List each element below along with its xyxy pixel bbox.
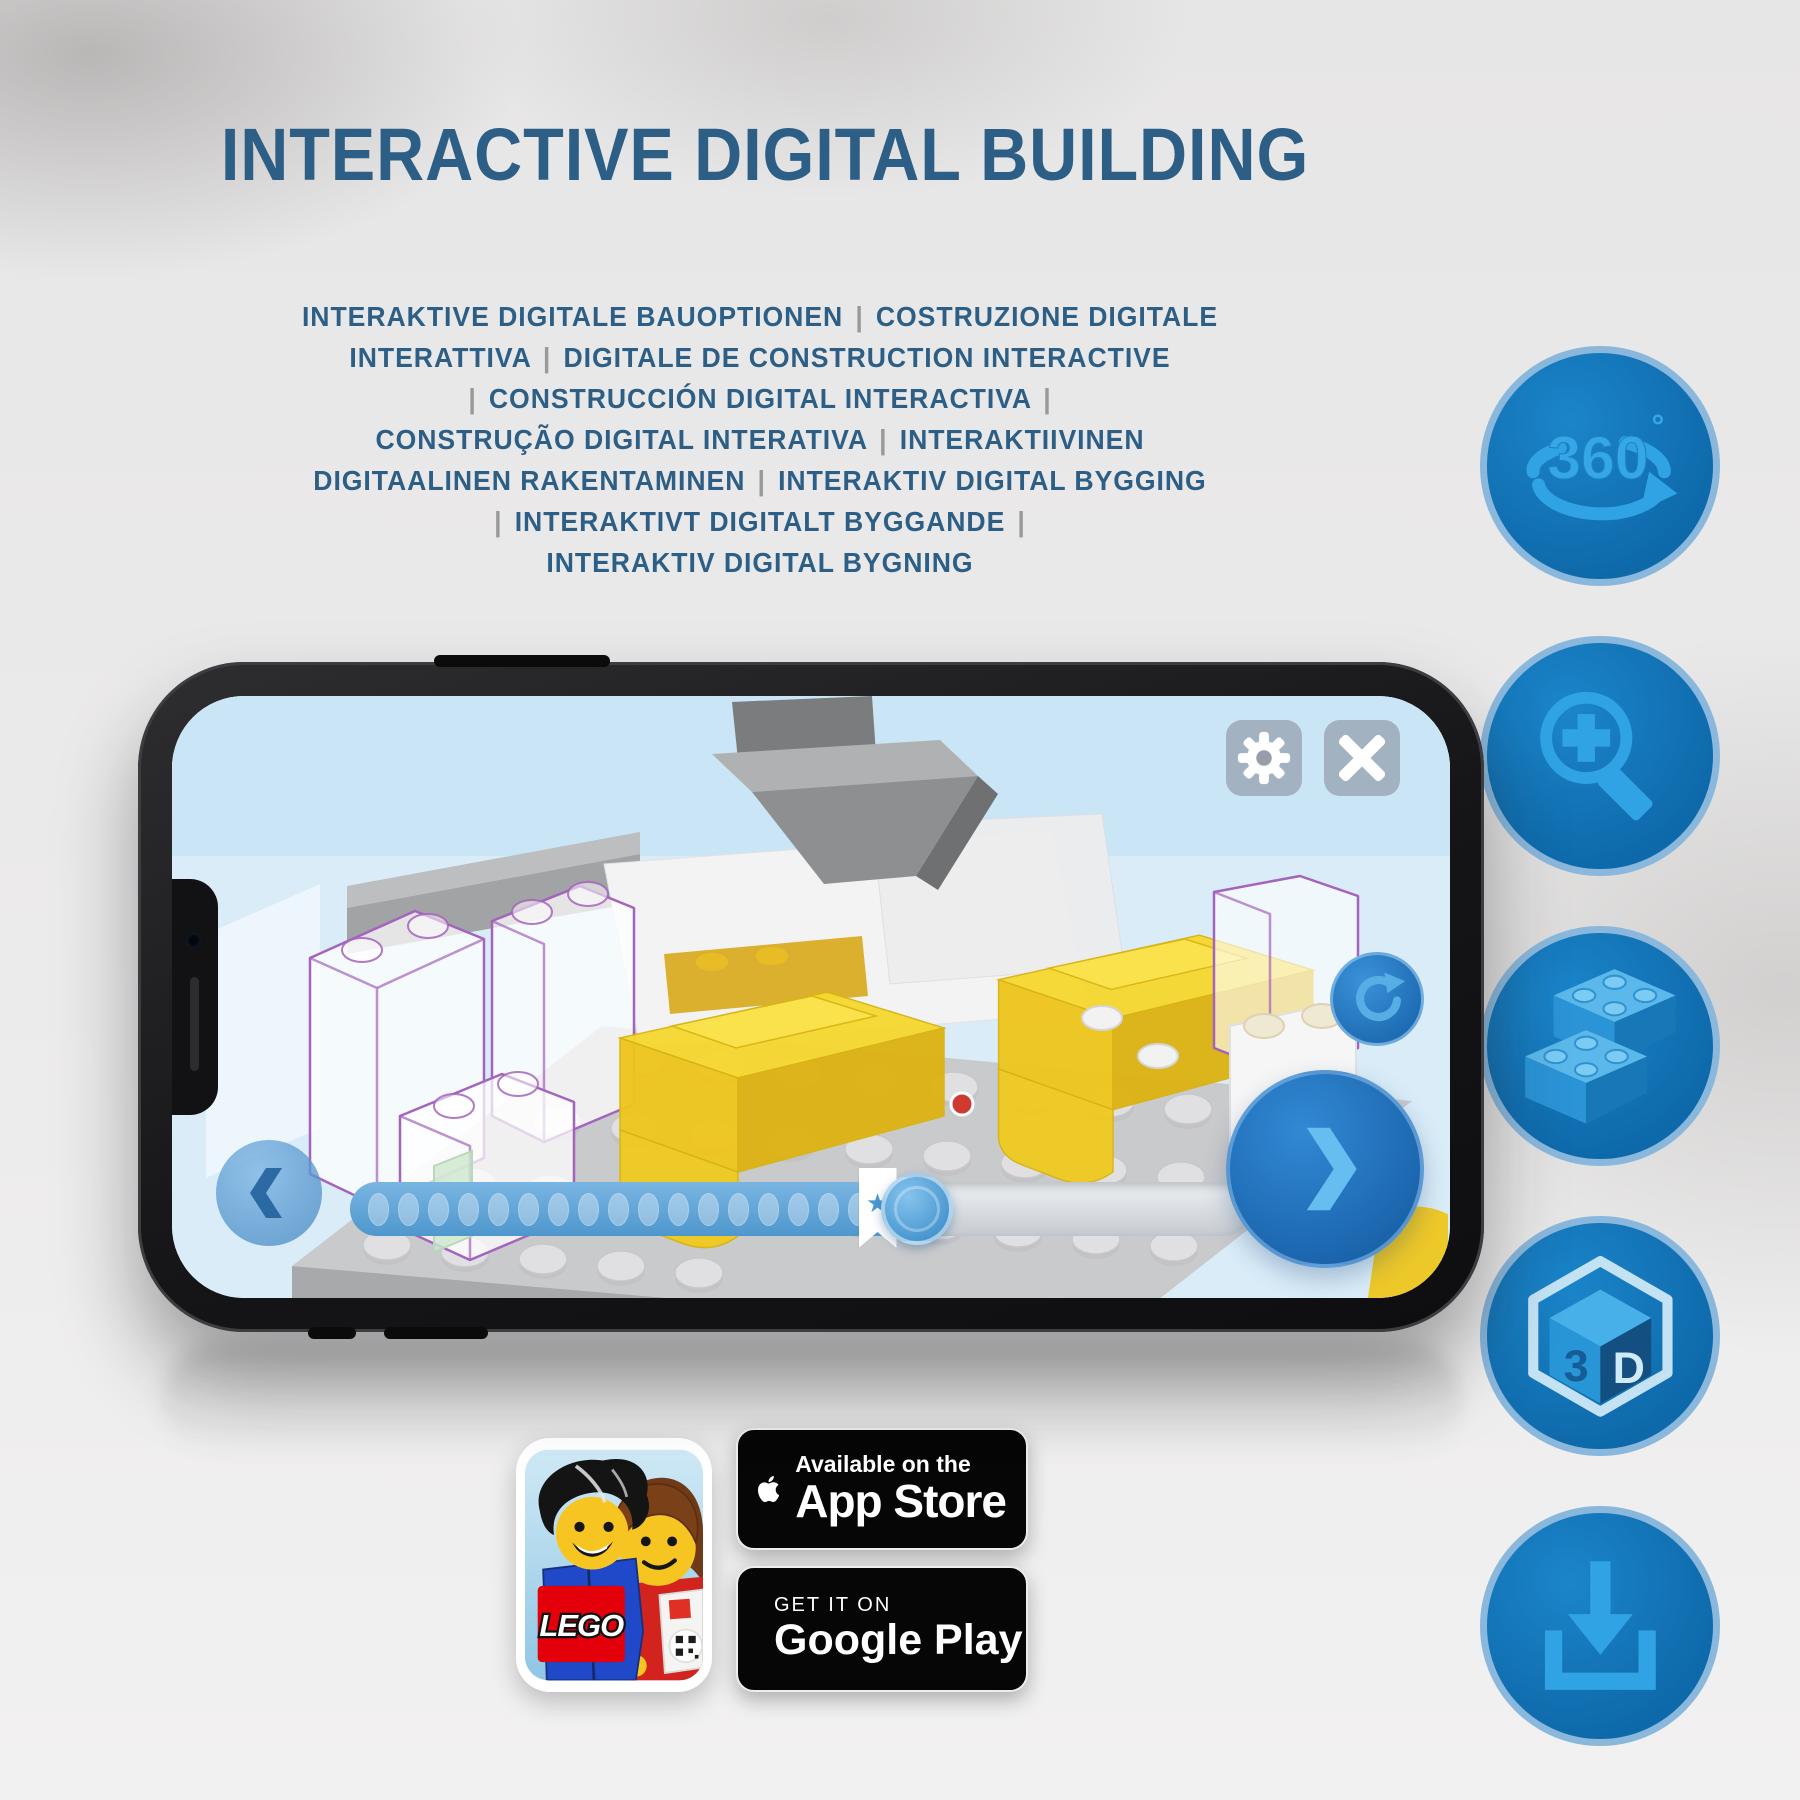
subtitle-line: DIGITAALINEN RAKENTAMINEN | INTERAKTIV D… (124, 460, 1397, 501)
previous-step-button[interactable] (216, 1140, 322, 1246)
lego-bricks-icon (1519, 965, 1682, 1128)
svg-text:°: ° (1651, 408, 1664, 444)
progress-dot (488, 1193, 509, 1226)
google-play-label: Google Play (774, 1617, 1023, 1663)
boy-head (556, 1497, 629, 1570)
progress-dot (368, 1193, 389, 1226)
phone-notch (172, 879, 218, 1115)
progress-dot (608, 1193, 629, 1226)
subtitle-line: | INTERAKTIVT DIGITALT BYGGANDE | (124, 501, 1397, 542)
zoom-in-icon (1519, 675, 1682, 838)
progress-dot (578, 1193, 599, 1226)
lego-logo-text: LEGO (539, 1608, 624, 1643)
next-step-button[interactable] (1226, 1070, 1424, 1268)
progress-dot (518, 1193, 539, 1226)
apple-logo-icon (758, 1457, 779, 1521)
feature-download (1480, 1506, 1720, 1746)
progress-dot (668, 1193, 689, 1226)
feature-bricks (1480, 926, 1720, 1166)
chevron-right-icon (1230, 1070, 1420, 1268)
progress-dot (548, 1193, 569, 1226)
svg-text:360: 360 (1547, 423, 1648, 491)
progress-dot (818, 1193, 839, 1226)
feature-360-rotation: 360 ° (1480, 346, 1720, 586)
progress-fill (350, 1182, 917, 1236)
camera-icon (186, 933, 201, 948)
phone-power-button (434, 655, 610, 667)
lego-app-icon[interactable]: LEGO (516, 1438, 712, 1692)
settings-button[interactable] (1226, 720, 1302, 796)
rotate-reset-button[interactable] (1330, 952, 1424, 1046)
progress-dot (698, 1193, 719, 1226)
app-store-badge[interactable]: Available on the App Store (736, 1428, 1028, 1550)
feature-zoom (1480, 636, 1720, 876)
subtitle-line: CONSTRUÇÃO DIGITAL INTERATIVA | INTERAKT… (124, 419, 1397, 460)
gear-icon (1233, 727, 1295, 789)
subtitle-line: INTERAKTIVE DIGITALE BAUOPTIONEN | COSTR… (124, 296, 1397, 337)
google-play-badge[interactable]: GET IT ON Google Play (736, 1566, 1028, 1692)
download-icon (1519, 1545, 1682, 1708)
progress-dot (428, 1193, 449, 1226)
app-store-label: App Store (795, 1477, 1006, 1527)
close-button[interactable] (1324, 720, 1400, 796)
360-rotation-icon: 360 ° (1519, 385, 1682, 548)
chevron-left-icon (216, 1140, 322, 1246)
app-store-tagline: Available on the (795, 1452, 1006, 1477)
progress-dot (758, 1193, 779, 1226)
subtitle-line: | CONSTRUCCIÓN DIGITAL INTERACTIVA | (124, 378, 1397, 419)
google-play-tagline: GET IT ON (774, 1595, 1023, 1617)
page-title: INTERACTIVE DIGITAL BUILDING (77, 112, 1454, 197)
progress-dot (788, 1193, 809, 1226)
phone-volume-button (308, 1327, 356, 1339)
svg-text:D: D (1612, 1343, 1644, 1393)
speaker-icon (190, 977, 199, 1071)
progress-slider-handle[interactable] (881, 1173, 953, 1245)
phone-mockup: ★ (138, 662, 1484, 1332)
3d-cube-icon: 3 D (1519, 1255, 1682, 1418)
progress-dot (728, 1193, 749, 1226)
feature-3d-view: 3 D (1480, 1216, 1720, 1456)
subtitle-line: INTERAKTIV DIGITAL BYGNING (124, 542, 1397, 583)
poster: INTERACTIVE DIGITAL BUILDING INTERAKTIVE… (0, 0, 1800, 1800)
lego-app-artwork: LEGO (525, 1447, 703, 1683)
progress-dot (458, 1193, 479, 1226)
phone-screen: ★ (172, 696, 1450, 1298)
progress-dot (398, 1193, 419, 1226)
subtitle-multilingual: INTERAKTIVE DIGITALE BAUOPTIONEN | COSTR… (124, 296, 1397, 583)
phone-volume-button (384, 1327, 488, 1339)
subtitle-line: INTERATTIVA | DIGITALE DE CONSTRUCTION I… (124, 337, 1397, 378)
progress-dot (638, 1193, 659, 1226)
svg-text:3: 3 (1563, 1341, 1588, 1391)
build-progress-bar[interactable]: ★ (350, 1182, 1250, 1236)
rotate-icon (1343, 965, 1411, 1033)
